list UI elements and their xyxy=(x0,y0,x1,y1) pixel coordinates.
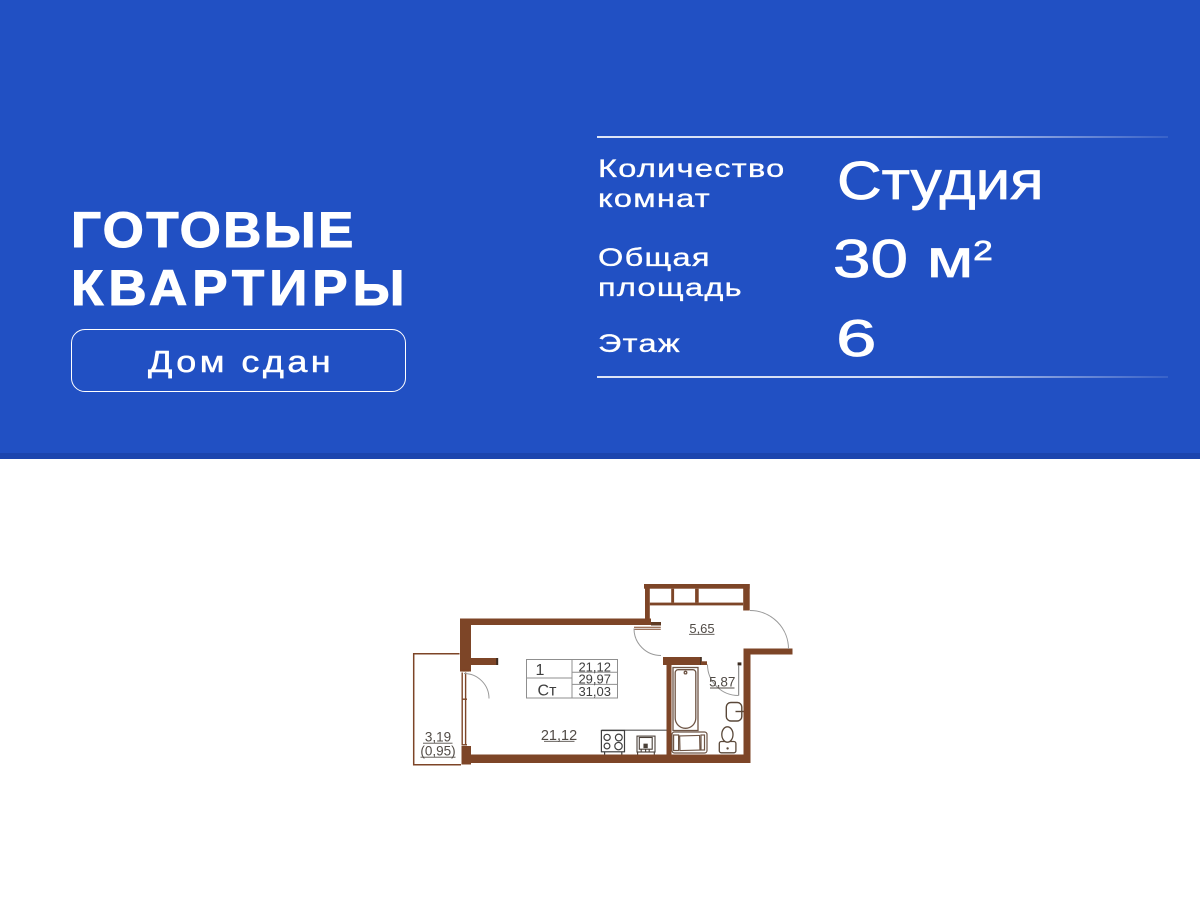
svg-text:31,03: 31,03 xyxy=(578,684,611,699)
svg-text:(0,95): (0,95) xyxy=(420,744,455,759)
svg-text:1: 1 xyxy=(536,662,545,679)
svg-text:3,19: 3,19 xyxy=(425,730,451,745)
svg-text:Ст: Ст xyxy=(538,683,558,700)
svg-text:5,65: 5,65 xyxy=(689,621,714,636)
svg-text:5,87: 5,87 xyxy=(709,675,735,690)
